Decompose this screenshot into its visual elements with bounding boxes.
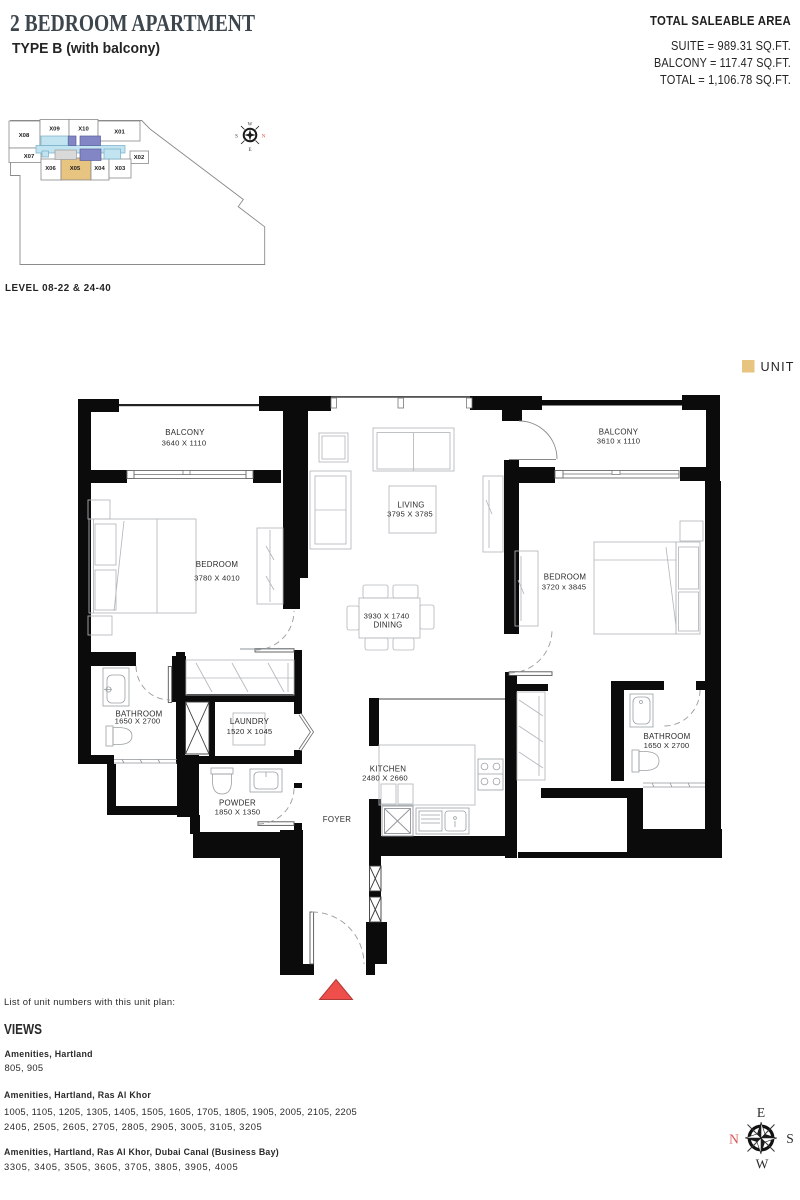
svg-text:3795 X 3785: 3795 X 3785 [387,510,433,519]
svg-text:3305, 3405, 3505, 3605, 3705,: 3305, 3405, 3505, 3605, 3705, 3805, 3905… [4,1161,238,1172]
svg-text:POWDER: POWDER [219,799,256,808]
svg-text:X02: X02 [134,155,145,161]
svg-text:3780 X 4010: 3780 X 4010 [194,574,240,583]
svg-text:3930 X 1740: 3930 X 1740 [364,612,410,621]
svg-text:TOTAL SALEABLE AREA: TOTAL SALEABLE AREA [650,13,791,28]
svg-text:LAUNDRY: LAUNDRY [230,717,270,726]
svg-text:LEVEL 08-22 & 24-40: LEVEL 08-22 & 24-40 [5,283,111,294]
svg-text:BALCONY: BALCONY [165,428,205,437]
svg-text:3640 X 1110: 3640 X 1110 [162,439,207,448]
svg-text:BALCONY: BALCONY [599,428,639,437]
svg-text:2405, 2505, 2605, 2705, 2805,: 2405, 2505, 2605, 2705, 2805, 2905, 3005… [4,1121,262,1132]
svg-text:TOTAL = 1,106.78 SQ.FT.: TOTAL = 1,106.78 SQ.FT. [660,73,791,87]
svg-text:E: E [248,148,251,153]
svg-text:SUITE = 989.31 SQ.FT.: SUITE = 989.31 SQ.FT. [671,39,791,53]
svg-text:DINING: DINING [373,621,402,630]
svg-text:X04: X04 [94,166,105,172]
svg-text:X10: X10 [78,127,89,133]
svg-text:3720 x 3845: 3720 x 3845 [542,583,587,592]
svg-text:X03: X03 [115,166,126,172]
svg-text:BALCONY = 117.47 SQ.FT.: BALCONY = 117.47 SQ.FT. [654,56,791,70]
svg-text:S: S [235,135,238,140]
svg-text:LIVING: LIVING [397,501,424,510]
svg-text:Amenities, Hartland, Ras Al Kh: Amenities, Hartland, Ras Al Khor, Dubai … [4,1147,279,1157]
svg-text:X09: X09 [49,127,60,133]
svg-text:KITCHEN: KITCHEN [370,765,406,774]
svg-text:805, 905: 805, 905 [5,1062,44,1073]
svg-text:FOYER: FOYER [323,815,351,824]
svg-text:2480 X 2660: 2480 X 2660 [362,774,408,783]
svg-text:3610 x 1110: 3610 x 1110 [597,437,640,446]
svg-text:1650 X 2700: 1650 X 2700 [644,741,690,750]
svg-text:N: N [729,1132,739,1147]
svg-text:N: N [262,135,266,140]
svg-text:VIEWS: VIEWS [4,1021,42,1038]
svg-text:X05: X05 [70,166,81,172]
svg-text:E: E [757,1105,765,1120]
svg-text:UNIT: UNIT [761,360,795,374]
svg-text:2 BEDROOM APARTMENT: 2 BEDROOM APARTMENT [10,10,255,37]
svg-text:1850 X 1350: 1850 X 1350 [215,808,261,817]
svg-text:Amenities, Hartland, Ras Al Kh: Amenities, Hartland, Ras Al Khor [4,1090,151,1100]
svg-text:X01: X01 [114,130,125,136]
svg-text:X08: X08 [19,133,30,139]
svg-text:S: S [786,1131,794,1146]
svg-text:W: W [756,1157,769,1172]
svg-text:1650 X 2700: 1650 X 2700 [115,717,161,726]
svg-text:BEDROOM: BEDROOM [544,573,587,582]
svg-text:Amenities, Hartland: Amenities, Hartland [5,1049,93,1059]
svg-text:1520 X 1045: 1520 X 1045 [227,727,273,736]
svg-text:X06: X06 [45,166,56,172]
svg-text:List of unit numbers with this: List of unit numbers with this unit plan… [4,996,175,1007]
svg-text:TYPE B (with balcony): TYPE B (with balcony) [12,41,160,57]
svg-text:W: W [248,123,253,128]
svg-text:X07: X07 [24,154,35,160]
svg-text:BEDROOM: BEDROOM [196,560,239,569]
svg-text:1005, 1105, 1205, 1305, 1405,: 1005, 1105, 1205, 1305, 1405, 1505, 1605… [4,1106,357,1117]
svg-text:BATHROOM: BATHROOM [643,732,690,741]
